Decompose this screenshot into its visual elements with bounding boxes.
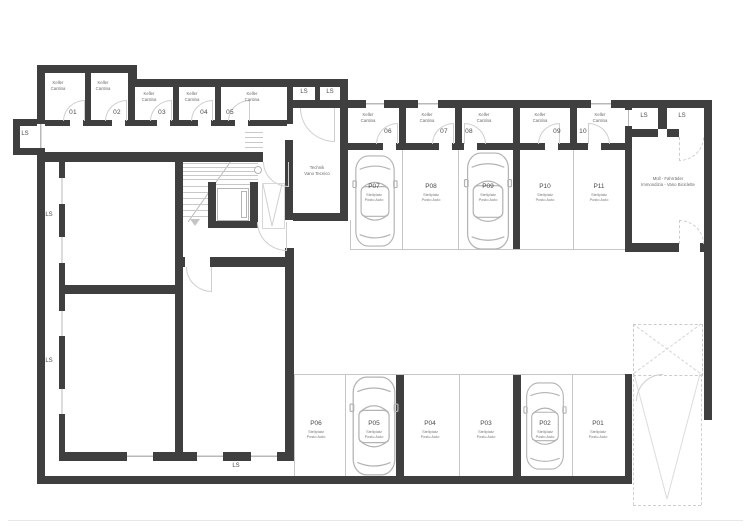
door-opening [545,143,558,150]
wall [285,248,294,460]
label-it: Cantina [593,118,608,124]
door-opening [383,143,396,150]
stall-line [458,150,459,249]
light-shaft-wall [13,119,37,126]
stall-sub-it: Posto Auto [365,434,384,439]
parking-stall-label: P09StellplatzPosto Auto [479,183,498,202]
window [59,178,65,204]
cellar-room-label: KellerCantina [185,91,200,103]
window [127,452,153,461]
parking-stall-label: P01StellplatzPosto Auto [589,420,608,439]
cellar-number: 09 [553,128,561,135]
wall [173,87,179,120]
label-it: Immondizia - Vano Biciclette [641,182,695,188]
cellar-number: 02 [113,109,121,116]
wall [704,100,712,420]
stall-id: P04 [421,420,440,427]
wall [37,152,263,162]
waste-bike-room-label: Müll - Fahrräder Immondizia - Vano Bicic… [641,176,695,189]
cellar-number: 03 [158,109,166,116]
stall-line [402,150,403,249]
wall [287,87,293,124]
stall-id: P05 [365,420,384,427]
wall [59,285,175,294]
label-de: Keller [533,112,548,118]
stall-id: P06 [307,420,326,427]
cellar-number: 07 [440,128,448,135]
stall-sub-it: Posto Auto [479,197,498,202]
label-de: Keller [51,80,66,86]
cellar-room-label: KellerCantina [142,91,157,103]
window [37,124,45,148]
wall [293,213,348,221]
parking-stall-label: P06StellplatzPosto Auto [307,420,326,439]
stall-id: P03 [477,420,496,427]
stair-symbol-circle [254,166,262,174]
wall [128,65,135,120]
floor-plan: KellerCantina KellerCantina KellerCantin… [0,0,750,527]
label-it: Cantina [245,97,260,103]
wall [215,87,221,120]
wall [37,148,45,484]
window [366,100,384,108]
cellar-room-label: KellerCantina [420,112,435,124]
light-shaft-label: LS [678,113,685,119]
wall [175,162,183,460]
wall [37,65,45,124]
label-it: Cantina [185,97,200,103]
wall [293,100,348,108]
window [591,100,611,108]
stall-id: P10 [536,183,555,190]
light-shaft-label: LS [45,212,52,218]
cellar-number: 06 [384,128,392,135]
label-de: Keller [142,91,157,97]
stall-sub-it: Posto Auto [421,434,440,439]
cellar-room-label: KellerCantina [593,112,608,124]
cellar-number: 05 [226,109,234,116]
label-de: Keller [361,112,376,118]
elevator-shaft-wall [208,221,258,228]
stall-line [572,374,573,476]
cellar-number: 04 [200,109,208,116]
door-opening [464,143,477,150]
window [625,110,632,126]
ramp-edge [633,374,634,505]
parking-stall-label: P11StellplatzPosto Auto [590,183,609,202]
light-shaft-wall [13,148,37,155]
vent-shaft [262,183,285,229]
door-opening [588,143,601,150]
window [251,452,277,461]
door-opening [679,130,700,137]
label-de: Keller [477,112,492,118]
window [418,100,438,108]
parking-divider-wall [625,374,632,476]
light-shaft-label: LS [21,131,28,137]
label-it: Cantina [420,118,435,124]
parking-stall-label: P04StellplatzPosto Auto [421,420,440,439]
parking-stall-label: P02StellplatzPosto Auto [536,420,555,439]
parking-stall-label: P08StellplatzPosto Auto [422,183,441,202]
door-opening [439,143,452,150]
wall [37,476,632,484]
door-opening [679,243,700,252]
parking-divider-wall [513,150,520,250]
wall [658,100,667,129]
label-it: Cantina [533,118,548,124]
window [59,311,65,336]
parking-stall-label: P03StellplatzPosto Auto [477,420,496,439]
wall [37,65,137,73]
light-shaft-label: LS [232,463,239,469]
light-shaft-label: LS [640,113,647,119]
parking-stall-label: P07StellplatzPosto Auto [365,183,384,202]
wall [315,87,320,100]
stall-line [294,374,295,476]
wall [130,79,348,87]
stall-id: P09 [479,183,498,190]
wall [85,73,91,120]
label-it: Cantina [51,86,66,92]
cellar-room-label: KellerCantina [361,112,376,124]
window [197,452,223,461]
stall-sub-it: Posto Auto [422,197,441,202]
label-de: Keller [593,112,608,118]
stair-direction-arrow [190,219,200,226]
parking-stall-label: P10StellplatzPosto Auto [536,183,555,202]
stall-id: P08 [422,183,441,190]
label-de: Keller [185,91,200,97]
cellar-number: 08 [465,128,473,135]
door-opening [185,257,210,267]
light-shaft-label: LS [45,358,52,364]
stall-sub-it: Posto Auto [365,197,384,202]
cellar-number: 10 [579,128,587,135]
light-shaft-label: LS [300,89,307,95]
stall-line [345,374,346,476]
label-it: Cantina [142,97,157,103]
stall-sub-it: Posto Auto [307,434,326,439]
stall-sub-it: Posto Auto [536,434,555,439]
cellar-number: 01 [69,109,77,116]
stall-line [573,150,574,249]
ramp-edge [633,505,701,506]
parking-stall-label: P05StellplatzPosto Auto [365,420,384,439]
cellar-room-label: KellerCantina [51,80,66,92]
cellar-room-label: KellerCantina [533,112,548,124]
stall-sub-it: Posto Auto [536,197,555,202]
parking-divider-wall [513,374,521,476]
cellar-room-label: KellerCantina [245,91,260,103]
label-de: Keller [96,80,111,86]
window [59,389,65,414]
stall-id: P07 [365,183,384,190]
label-it: Cantina [477,118,492,124]
label-de: Keller [245,91,260,97]
ramp-area [633,324,703,376]
stall-line [459,374,460,476]
light-shaft-label: LS [326,89,333,95]
elevator-counterweight [241,191,247,218]
label-it: Cantina [361,118,376,124]
wall [667,129,679,137]
stall-id: P02 [536,420,555,427]
stall-id: P01 [589,420,608,427]
label-de: Keller [420,112,435,118]
stall-sub-it: Posto Auto [590,197,609,202]
technik-room-label: Technik Vano Tecnico [304,165,329,178]
label-it: Vano Tecnico [304,171,329,177]
window [59,237,65,263]
label-it: Cantina [96,86,111,92]
stall-sub-it: Posto Auto [589,434,608,439]
ramp-edge [701,374,702,505]
wall [625,129,658,137]
stall-line [350,220,351,249]
stall-sub-it: Posto Auto [477,434,496,439]
cellar-room-label: KellerCantina [477,112,492,124]
stall-id: P11 [590,183,609,190]
elevator-door-line [216,184,250,185]
site-boundary-line [8,520,743,521]
cellar-room-label: KellerCantina [96,80,111,92]
